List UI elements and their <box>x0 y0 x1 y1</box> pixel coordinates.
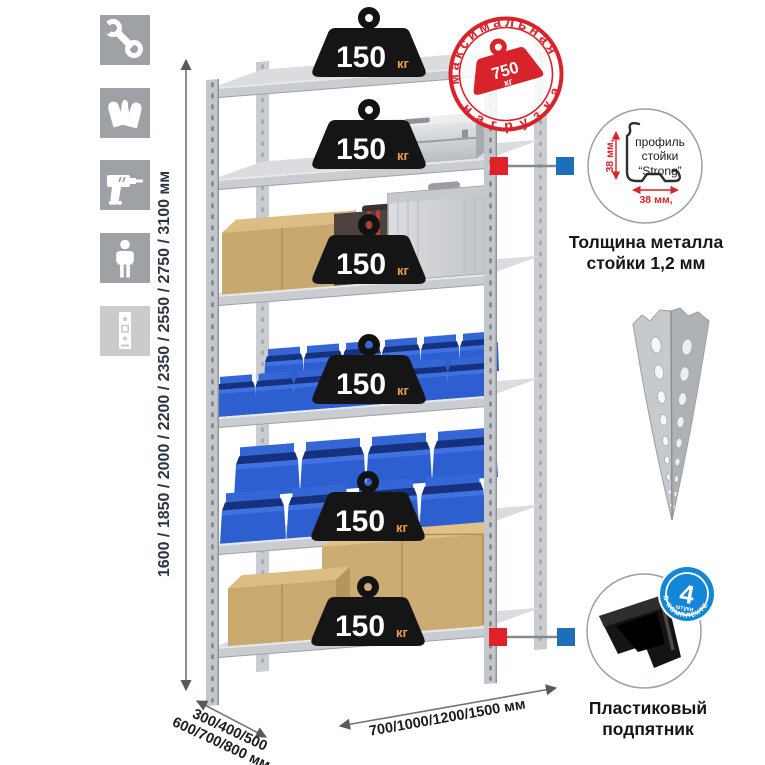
red-marker-bottom <box>489 628 507 646</box>
profile-label-1: профиль <box>635 135 685 149</box>
red-marker-top <box>490 157 508 175</box>
corner-post-graphic <box>633 308 709 520</box>
profile-label-3: “Strong” <box>638 164 681 178</box>
blue-bin <box>216 374 256 417</box>
main-graphic: 150 кг 1600 / 1850 / 2000 / 2200 / 2350 … <box>0 0 765 765</box>
blue-bin <box>234 443 300 498</box>
blue-bin <box>420 473 486 528</box>
profile-dim-horizontal: 38 мм, <box>639 194 672 206</box>
depth-dimension: 300/400/500 600/700/800 мм <box>170 700 280 765</box>
profile-label-2: стойки <box>642 149 679 163</box>
width-dimension: 700/1000/1200/1500 мм <box>340 688 556 740</box>
profile-caption-1: Толщина металла <box>569 232 724 252</box>
weight-badge-shelf1 <box>312 11 425 78</box>
profile-callout <box>490 157 574 175</box>
foot-caption-2: подпятник <box>602 719 694 739</box>
profile-caption-2: стойки 1,2 мм <box>587 253 706 273</box>
height-dimension: 1600 / 1850 / 2000 / 2200 / 2350 / 2550 … <box>156 60 186 690</box>
blue-marker-bottom <box>557 628 575 646</box>
infographic-shelving-rack: 150 кг 1600 / 1850 / 2000 / 2200 / 2350 … <box>0 0 765 765</box>
blue-bin <box>220 489 286 544</box>
width-label: 700/1000/1200/1500 мм <box>368 696 527 739</box>
foot-caption-1: Пластиковый <box>589 698 707 718</box>
foot-detail: 4 штуки в комплекте Пластиковый подпятни… <box>587 560 721 739</box>
blue-bin <box>300 437 366 492</box>
profile-dim-vertical: 38 мм, <box>604 139 616 172</box>
blue-marker-top <box>556 157 574 175</box>
foot-callout <box>489 628 575 646</box>
blue-bin <box>255 371 295 414</box>
height-label: 1600 / 1850 / 2000 / 2200 / 2350 / 2550 … <box>156 171 173 577</box>
weight-badge-shelf2 <box>312 103 425 170</box>
blue-bin <box>447 356 487 399</box>
profile-detail: 38 мм, 38 мм, профиль стойки “Strong” То… <box>569 109 724 273</box>
